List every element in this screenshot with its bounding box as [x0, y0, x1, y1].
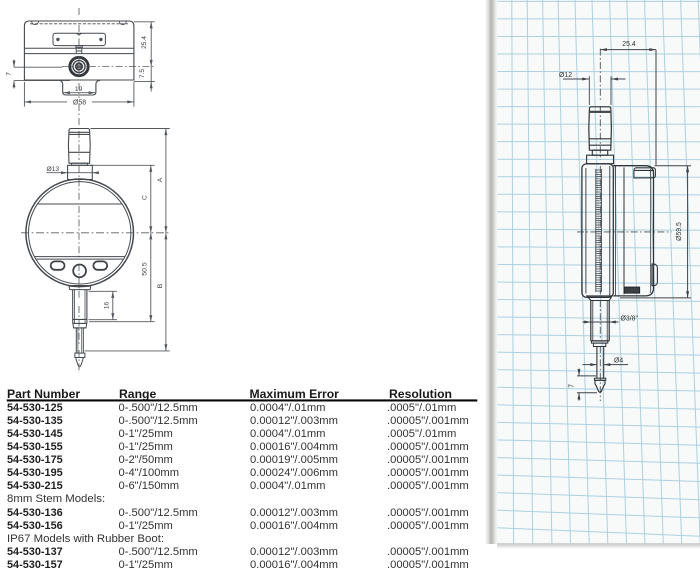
svg-text:7.5: 7.5	[139, 69, 146, 78]
svg-text:19: 19	[75, 86, 83, 93]
svg-text:7: 7	[6, 72, 13, 76]
svg-text:7: 7	[568, 384, 575, 388]
svg-text:Ø3/8": Ø3/8"	[621, 316, 639, 323]
svg-text:50.5: 50.5	[141, 262, 148, 275]
svg-text:25.4: 25.4	[141, 36, 148, 49]
svg-text:Ø4: Ø4	[614, 357, 623, 364]
svg-text:25.4: 25.4	[622, 41, 636, 48]
svg-text:Ø58: Ø58	[73, 100, 86, 107]
svg-text:Ø59.5: Ø59.5	[676, 222, 683, 241]
svg-text:16: 16	[103, 302, 110, 310]
svg-text:A: A	[157, 177, 164, 182]
svg-text:C: C	[142, 195, 149, 200]
svg-text:B: B	[157, 283, 164, 288]
svg-text:Ø12: Ø12	[559, 72, 572, 79]
svg-text:Ø13: Ø13	[47, 166, 60, 173]
